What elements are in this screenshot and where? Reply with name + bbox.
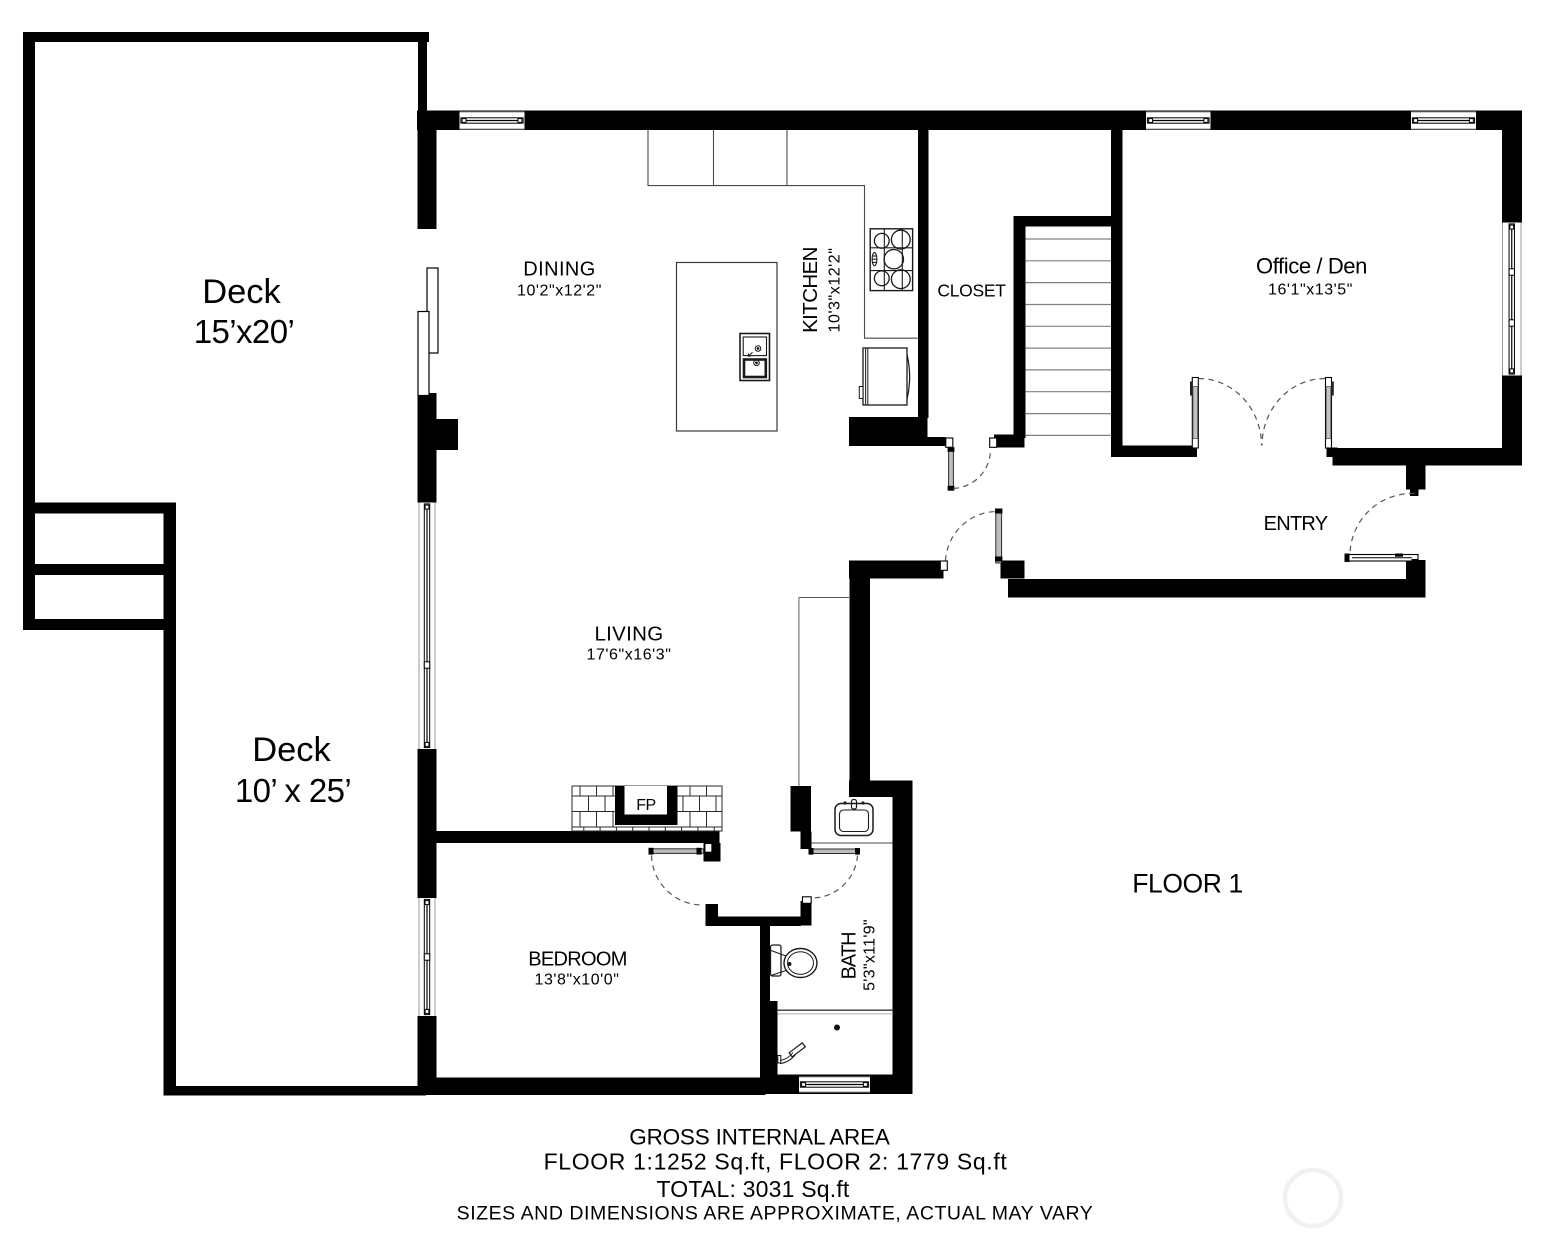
svg-text:KITCHEN: KITCHEN: [799, 247, 822, 333]
svg-text:TOTAL: 3031 Sq.ft: TOTAL: 3031 Sq.ft: [656, 1176, 849, 1202]
svg-text:GROSS INTERNAL AREA: GROSS INTERNAL AREA: [629, 1125, 890, 1150]
svg-text:DINING: DINING: [523, 259, 595, 281]
svg-text:SIZES AND DIMENSIONS ARE APPRO: SIZES AND DIMENSIONS ARE APPROXIMATE, AC…: [457, 1203, 1094, 1225]
svg-text:17'6"x16'3": 17'6"x16'3": [587, 647, 672, 664]
svg-text:FLOOR 1: FLOOR 1: [1132, 869, 1243, 899]
svg-text:CLOSET: CLOSET: [937, 281, 1006, 301]
svg-text:15’x20’: 15’x20’: [194, 313, 294, 350]
svg-text:10’ x 25’: 10’ x 25’: [235, 772, 351, 809]
svg-text:13'8"x10'0": 13'8"x10'0": [535, 972, 620, 989]
svg-text:BATH: BATH: [838, 933, 860, 980]
svg-text:Deck: Deck: [252, 731, 331, 769]
svg-text:10'2"x12'2": 10'2"x12'2": [517, 283, 602, 300]
svg-text:10'3"x12'2": 10'3"x12'2": [827, 248, 844, 333]
svg-text:16'1"x13'5": 16'1"x13'5": [1268, 282, 1353, 299]
svg-text:ENTRY: ENTRY: [1264, 513, 1328, 535]
svg-text:Office / Den: Office / Den: [1256, 254, 1367, 279]
svg-text:FLOOR 1:1252 Sq.ft, FLOOR 2: 1: FLOOR 1:1252 Sq.ft, FLOOR 2: 1779 Sq.ft: [544, 1149, 1008, 1175]
svg-text:FP: FP: [636, 797, 655, 814]
svg-text:Deck: Deck: [202, 273, 281, 311]
svg-text:LIVING: LIVING: [594, 623, 663, 646]
svg-text:BEDROOM: BEDROOM: [528, 949, 626, 971]
svg-text:5'3"x11'9": 5'3"x11'9": [862, 919, 879, 991]
